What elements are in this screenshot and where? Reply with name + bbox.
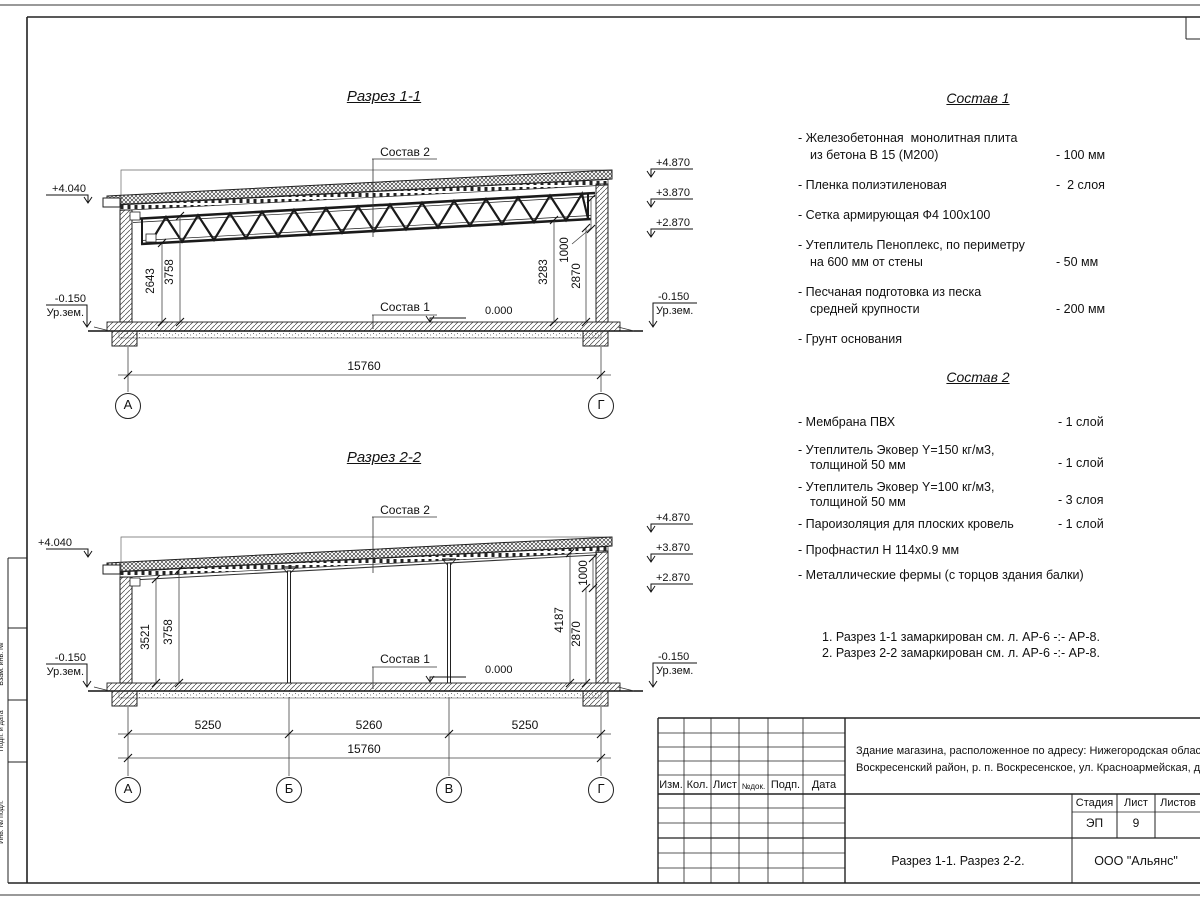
frame-label-vzam: Взам. инв. №	[0, 629, 7, 699]
list-item: - Песчаная подготовка из песка	[798, 285, 981, 299]
list-item-value: - 3 слоя	[1058, 493, 1103, 507]
elev-right-3-s2: +2.870	[656, 572, 690, 585]
tb-drawing-title: Разрез 1-1. Разрез 2-2.	[858, 854, 1058, 868]
axis-a-s2: А	[116, 782, 140, 797]
section-2-2-title: Разрез 2-2	[294, 449, 474, 466]
tb-col-kol: Кол.	[684, 779, 711, 792]
axis-g-s1: Г	[589, 398, 613, 413]
list-item: - Сетка армирующая Ф4 100х100	[798, 208, 990, 222]
list-item: - Металлические фермы (с торцов здания б…	[798, 568, 1084, 582]
sostav2-callout-s1: Состав 2	[372, 146, 438, 160]
axis-a-s1: А	[116, 398, 140, 413]
dim-2870-s1: 2870	[571, 246, 585, 306]
list-item-value: - 50 мм	[1056, 255, 1098, 269]
list-item-value: - 100 мм	[1056, 148, 1105, 162]
tb-col-izm: Изм.	[658, 779, 684, 792]
list-item: из бетона В 15 (М200)	[810, 148, 938, 162]
ground-label-right-s1: Ур.зем.	[656, 305, 693, 318]
dim-3283: 3283	[538, 242, 552, 302]
list-item: толщиной 50 мм	[810, 458, 906, 472]
axis-v-s2: В	[437, 782, 461, 797]
ground-label-right-s2: Ур.зем.	[656, 665, 693, 678]
list-item: - Мембрана ПВХ	[798, 415, 895, 429]
list-item: толщиной 50 мм	[810, 495, 906, 509]
elev-right-1-s2: +4.870	[656, 512, 690, 525]
frame-label-podp: Подп. и дата	[0, 696, 7, 766]
list-item-value: - 1 слой	[1058, 456, 1104, 470]
tb-sheets-header: Листов	[1155, 797, 1200, 810]
dim-total-s2: 15760	[334, 743, 394, 757]
tb-company: ООО "Альянс"	[1075, 854, 1197, 868]
zero-level-s2: 0.000	[485, 664, 513, 677]
list-item-value: - 2 слоя	[1056, 178, 1105, 192]
tb-col-ndok: №док.	[739, 782, 768, 791]
list-item: - Грунт основания	[798, 332, 902, 346]
tb-project-desc-1: Здание магазина, расположенное по адресу…	[856, 745, 1200, 758]
list-item: - Железобетонная монолитная плита	[798, 131, 1017, 145]
dim-span-3: 5250	[495, 719, 555, 733]
drawing-sheet: Разрез 1-1 Состав 2 Состав 1 0.000 +4.04…	[0, 0, 1200, 900]
zero-level-s1: 0.000	[485, 305, 513, 318]
dim-2870-s2: 2870	[571, 604, 585, 664]
dim-2643: 2643	[145, 251, 159, 311]
elev-right-2-s2: +3.870	[656, 542, 690, 555]
elev-right-3-s1: +2.870	[656, 217, 690, 230]
tb-col-data: Дата	[803, 779, 845, 792]
list-item-value: - 1 слой	[1058, 415, 1104, 429]
dim-total-s1: 15760	[334, 360, 394, 374]
tb-col-podp: Подп.	[768, 779, 803, 792]
ground-label-left-s1: Ур.зем.	[38, 307, 84, 320]
elev-left-top-s1: +4.040	[38, 183, 86, 196]
frame-label-inv: Инв. № подл.	[0, 787, 7, 857]
tb-stage-value: ЭП	[1072, 817, 1117, 831]
tb-sheet-value: 9	[1117, 817, 1155, 831]
elev-left-bottom-s2: -0.150	[38, 652, 86, 665]
elev-left-bottom-s1: -0.150	[38, 293, 86, 306]
section-1-1-title: Разрез 1-1	[294, 88, 474, 105]
note-2: 2. Разрез 2-2 замаркирован см. л. АР-6 -…	[822, 646, 1100, 660]
note-1: 1. Разрез 1-1 замаркирован см. л. АР-6 -…	[822, 630, 1100, 644]
sostav1-callout-s1: Состав 1	[372, 301, 438, 315]
list-item: - Утеплитель Эковер Y=100 кг/м3,	[798, 480, 994, 494]
list-item-value: - 200 мм	[1056, 302, 1105, 316]
dim-4187: 4187	[554, 590, 568, 650]
list-item: - Пленка полиэтиленовая	[798, 178, 947, 192]
dim-3758-s2: 3758	[163, 602, 177, 662]
sostav1-callout-s2: Состав 1	[372, 653, 438, 667]
elev-right-bottom-s1: -0.150	[658, 291, 689, 304]
dim-3521: 3521	[140, 607, 154, 667]
sostav1-title: Состав 1	[898, 90, 1058, 106]
tb-stage-header: Стадия	[1072, 797, 1117, 810]
sostav2-callout-s2: Состав 2	[372, 504, 438, 518]
sostav2-title: Состав 2	[898, 369, 1058, 385]
elev-right-2-s1: +3.870	[656, 187, 690, 200]
axis-b-s2: Б	[277, 782, 301, 797]
list-item: - Утеплитель Эковер Y=150 кг/м3,	[798, 443, 994, 457]
elev-right-1-s1: +4.870	[656, 157, 690, 170]
list-item: - Профнастил Н 114х0.9 мм	[798, 543, 959, 557]
dim-span-2: 5260	[339, 719, 399, 733]
dim-1000-s2: 1000	[578, 543, 592, 603]
dim-3758-s1: 3758	[164, 242, 178, 302]
tb-sheet-header: Лист	[1117, 797, 1155, 810]
tb-project-desc-2: Воскресенский район, р. п. Воскресенское…	[856, 762, 1200, 775]
axis-g-s2: Г	[589, 782, 613, 797]
list-item: на 600 мм от стены	[810, 255, 923, 269]
ground-label-left-s2: Ур.зем.	[38, 666, 84, 679]
tb-col-list: Лист	[711, 779, 739, 792]
dim-span-1: 5250	[178, 719, 238, 733]
list-item: - Пароизоляция для плоских кровель	[798, 517, 1014, 531]
elev-left-top-s2: +4.040	[38, 537, 72, 550]
list-item-value: - 1 слой	[1058, 517, 1104, 531]
list-item: - Утеплитель Пеноплекс, по периметру	[798, 238, 1025, 252]
list-item: средней крупности	[810, 302, 920, 316]
elev-right-bottom-s2: -0.150	[658, 651, 689, 664]
